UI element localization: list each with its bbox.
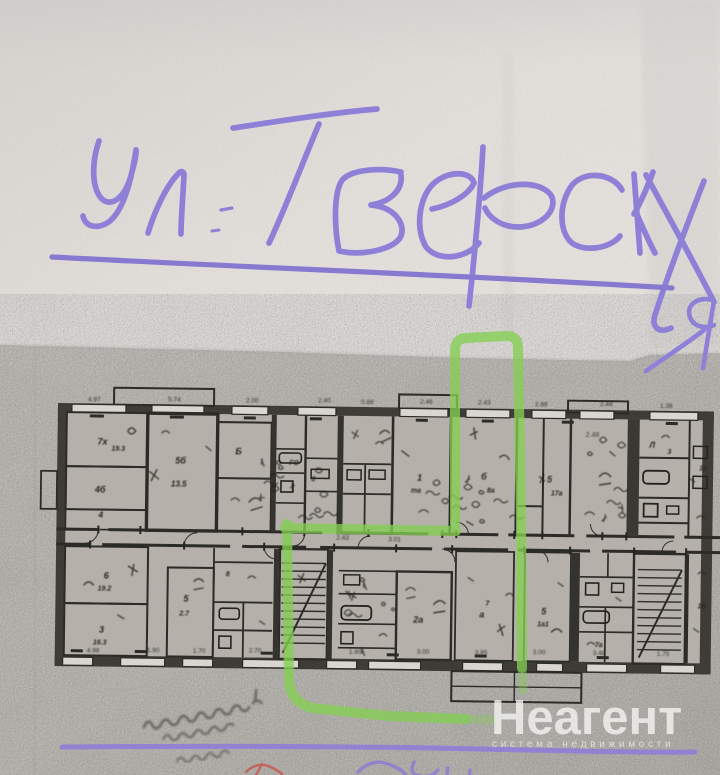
svg-text:5.74: 5.74: [168, 396, 181, 403]
svg-text:0.88: 0.88: [361, 399, 374, 406]
svg-text:7x: 7x: [97, 436, 108, 446]
svg-text:1: 1: [417, 473, 422, 483]
svg-text:4.97: 4.97: [88, 396, 101, 403]
svg-text:4б: 4б: [94, 484, 106, 494]
svg-text:2.00: 2.00: [246, 397, 259, 404]
svg-text:а: а: [479, 610, 484, 620]
svg-text:2.40: 2.40: [318, 397, 331, 404]
svg-text:2.88: 2.88: [535, 401, 548, 408]
svg-text:Неагент: Неагент: [491, 691, 682, 745]
svg-text:13.5: 13.5: [171, 479, 187, 488]
svg-text:2.7: 2.7: [178, 611, 190, 618]
svg-text:Л: Л: [648, 441, 655, 450]
svg-text:2.48: 2.48: [600, 401, 613, 408]
svg-text:1б: 1б: [697, 602, 706, 610]
svg-text:2.43: 2.43: [336, 535, 349, 542]
svg-text:3.00: 3.00: [533, 649, 546, 656]
svg-text:1.38: 1.38: [660, 403, 673, 410]
svg-text:2.46: 2.46: [420, 399, 433, 406]
svg-text:17а: 17а: [551, 490, 563, 497]
svg-text:3.00: 3.00: [417, 649, 430, 656]
svg-text:1а1: 1а1: [537, 621, 549, 628]
svg-text:19.2: 19.2: [98, 586, 112, 593]
svg-text:2.48: 2.48: [586, 432, 600, 439]
svg-text:б: б: [481, 472, 487, 482]
svg-text:та: та: [411, 488, 421, 495]
svg-text:1.90: 1.90: [147, 647, 160, 654]
svg-text:3.01: 3.01: [388, 536, 401, 543]
svg-text:8: 8: [226, 571, 230, 578]
svg-text:1з: 1з: [699, 465, 707, 472]
svg-text:2.43: 2.43: [478, 399, 491, 406]
svg-text:2а: 2а: [412, 615, 423, 625]
svg-text:8а: 8а: [487, 488, 495, 495]
svg-text:1.90: 1.90: [349, 649, 362, 656]
svg-text:ГО: ГО: [289, 460, 299, 467]
svg-text:1.70: 1.70: [193, 648, 206, 655]
svg-text:5б: 5б: [175, 456, 186, 466]
svg-text:3: 3: [99, 625, 104, 635]
svg-text:2.70: 2.70: [249, 647, 262, 654]
svg-text:16.3: 16.3: [93, 639, 107, 646]
svg-text:4.98: 4.98: [87, 647, 100, 654]
svg-text:1.75: 1.75: [657, 651, 670, 658]
svg-text:Б: Б: [235, 446, 242, 456]
svg-text:3: 3: [667, 449, 671, 456]
svg-text:4: 4: [97, 511, 103, 520]
svg-text:19.3: 19.3: [111, 446, 125, 453]
svg-text:б: б: [311, 475, 316, 483]
svg-text:7а: 7а: [595, 642, 603, 649]
